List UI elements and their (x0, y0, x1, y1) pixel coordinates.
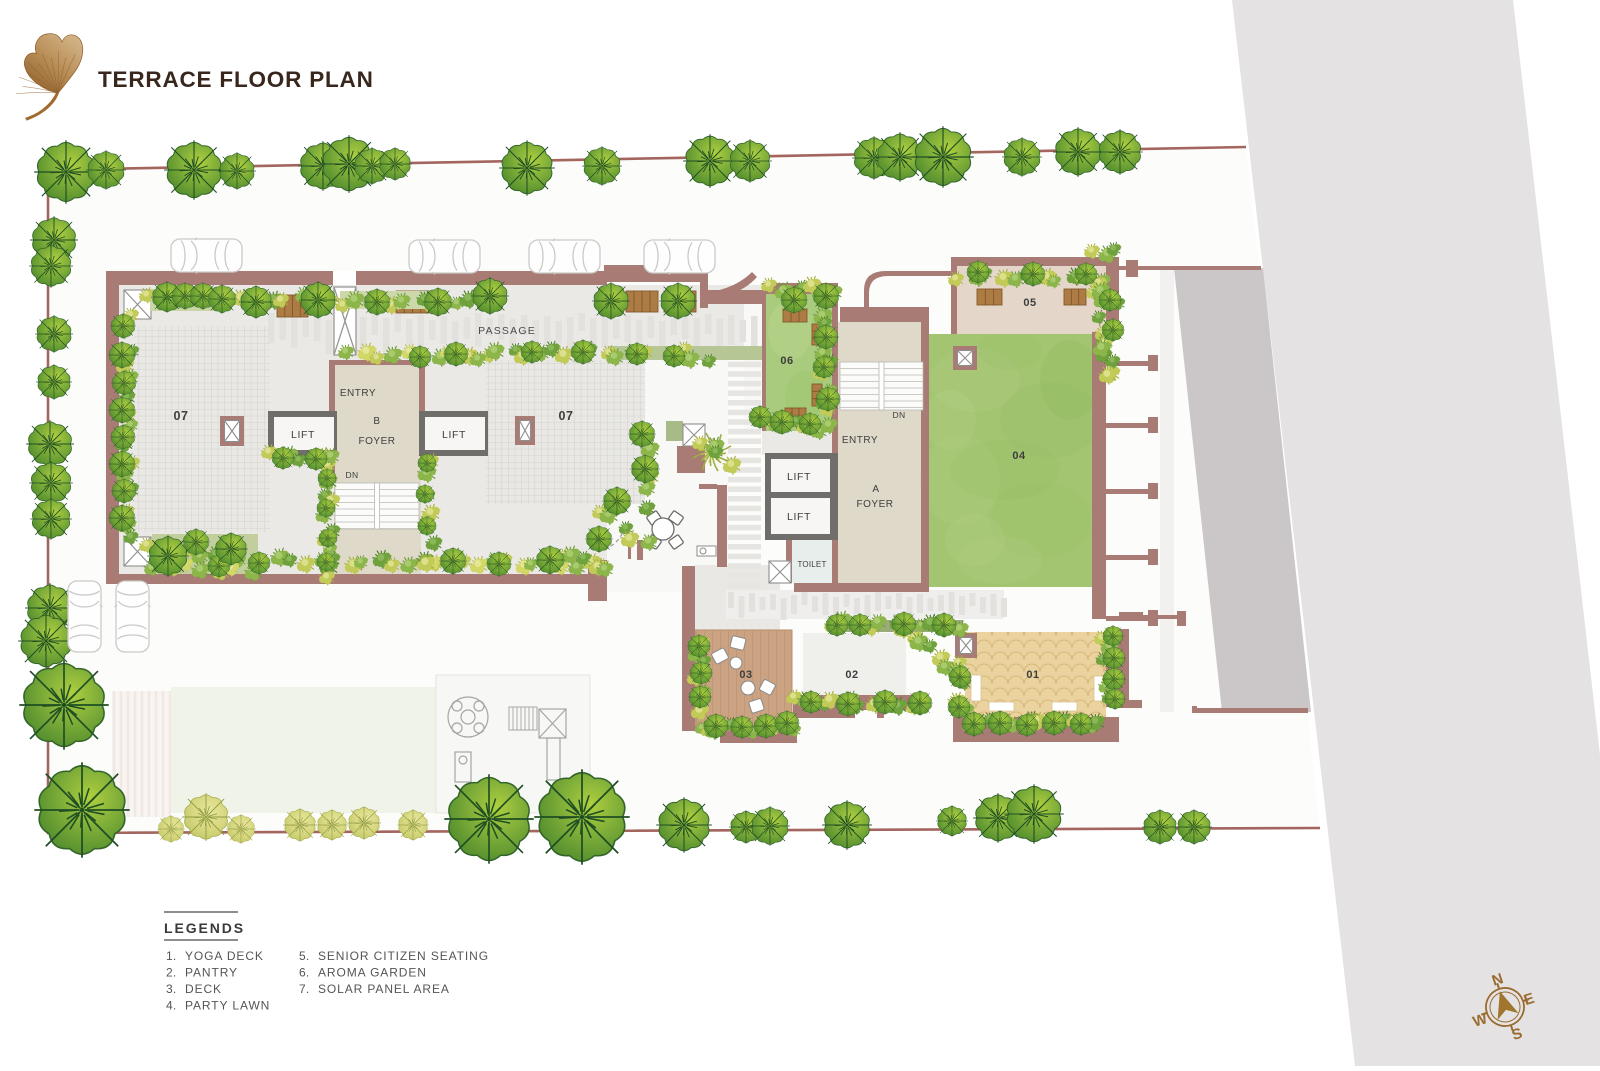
svg-text:PANTRY: PANTRY (185, 966, 238, 980)
svg-text:4.: 4. (166, 999, 176, 1013)
svg-text:LIFT: LIFT (787, 511, 811, 523)
svg-text:07: 07 (174, 409, 189, 423)
svg-text:07: 07 (559, 409, 574, 423)
svg-text:SOLAR PANEL AREA: SOLAR PANEL AREA (318, 982, 450, 996)
svg-text:03: 03 (739, 669, 752, 681)
svg-text:ENTRY: ENTRY (842, 435, 878, 446)
svg-text:3.: 3. (166, 982, 176, 996)
svg-text:05: 05 (1023, 297, 1036, 309)
svg-text:01: 01 (1026, 669, 1039, 681)
svg-text:04: 04 (1012, 450, 1026, 462)
svg-text:02: 02 (845, 669, 858, 681)
svg-text:1.: 1. (166, 949, 176, 963)
svg-text:LIFT: LIFT (291, 429, 315, 441)
svg-text:PASSAGE: PASSAGE (478, 325, 536, 337)
svg-text:2.: 2. (166, 966, 176, 980)
svg-text:TERRACE FLOOR PLAN: TERRACE FLOOR PLAN (98, 67, 374, 92)
svg-text:DN: DN (893, 410, 906, 420)
svg-text:A: A (872, 484, 879, 495)
svg-text:5.: 5. (299, 949, 309, 963)
svg-text:7.: 7. (299, 982, 309, 996)
svg-text:FOYER: FOYER (359, 436, 396, 447)
svg-text:SENIOR CITIZEN SEATING: SENIOR CITIZEN SEATING (318, 949, 489, 963)
svg-text:06: 06 (780, 355, 793, 367)
svg-text:B: B (373, 416, 380, 427)
svg-text:YOGA DECK: YOGA DECK (185, 949, 264, 963)
svg-text:LEGENDS: LEGENDS (164, 920, 245, 936)
svg-text:FOYER: FOYER (857, 499, 894, 510)
svg-text:AROMA GARDEN: AROMA GARDEN (318, 966, 427, 980)
svg-text:LIFT: LIFT (442, 429, 466, 441)
svg-text:TOILET: TOILET (797, 560, 826, 569)
svg-text:PARTY LAWN: PARTY LAWN (185, 999, 270, 1013)
svg-text:6.: 6. (299, 966, 309, 980)
svg-text:LIFT: LIFT (787, 471, 811, 483)
svg-text:DECK: DECK (185, 982, 222, 996)
svg-text:DN: DN (346, 470, 359, 480)
svg-text:ENTRY: ENTRY (340, 388, 376, 399)
